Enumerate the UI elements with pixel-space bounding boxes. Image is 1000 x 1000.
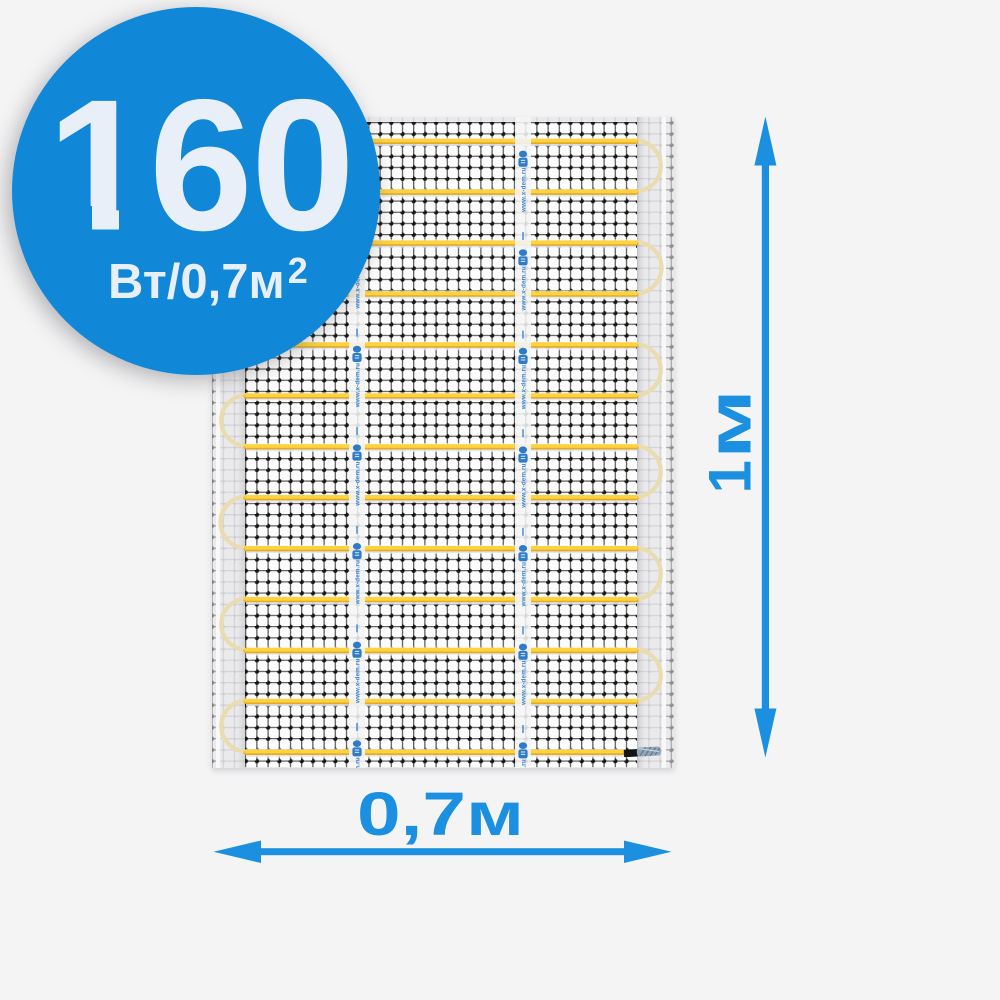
svg-text:1: 1 <box>697 460 764 493</box>
svg-text:м: м <box>697 389 764 459</box>
svg-text:160: 160 <box>47 61 353 270</box>
svg-text:0,7м: 0,7м <box>357 780 524 848</box>
svg-text:Вт/0,7м2: Вт/0,7м2 <box>108 250 308 309</box>
